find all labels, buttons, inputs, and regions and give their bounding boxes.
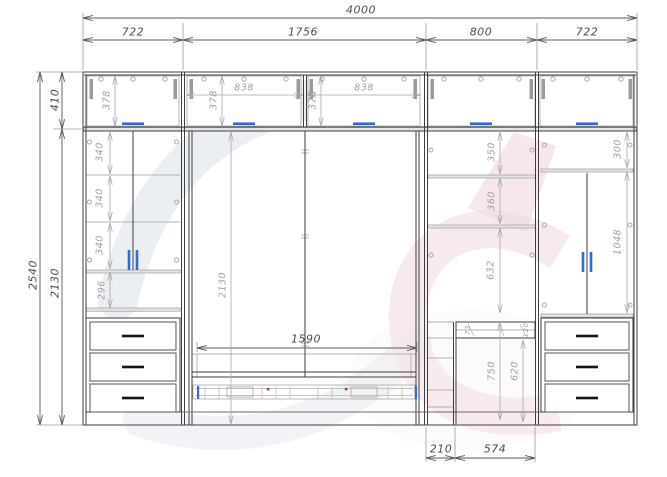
cad-drawing-canvas: 4000722175680072225404102130159021057437… xyxy=(0,0,667,477)
furniture-elevation-drawing xyxy=(0,0,667,477)
